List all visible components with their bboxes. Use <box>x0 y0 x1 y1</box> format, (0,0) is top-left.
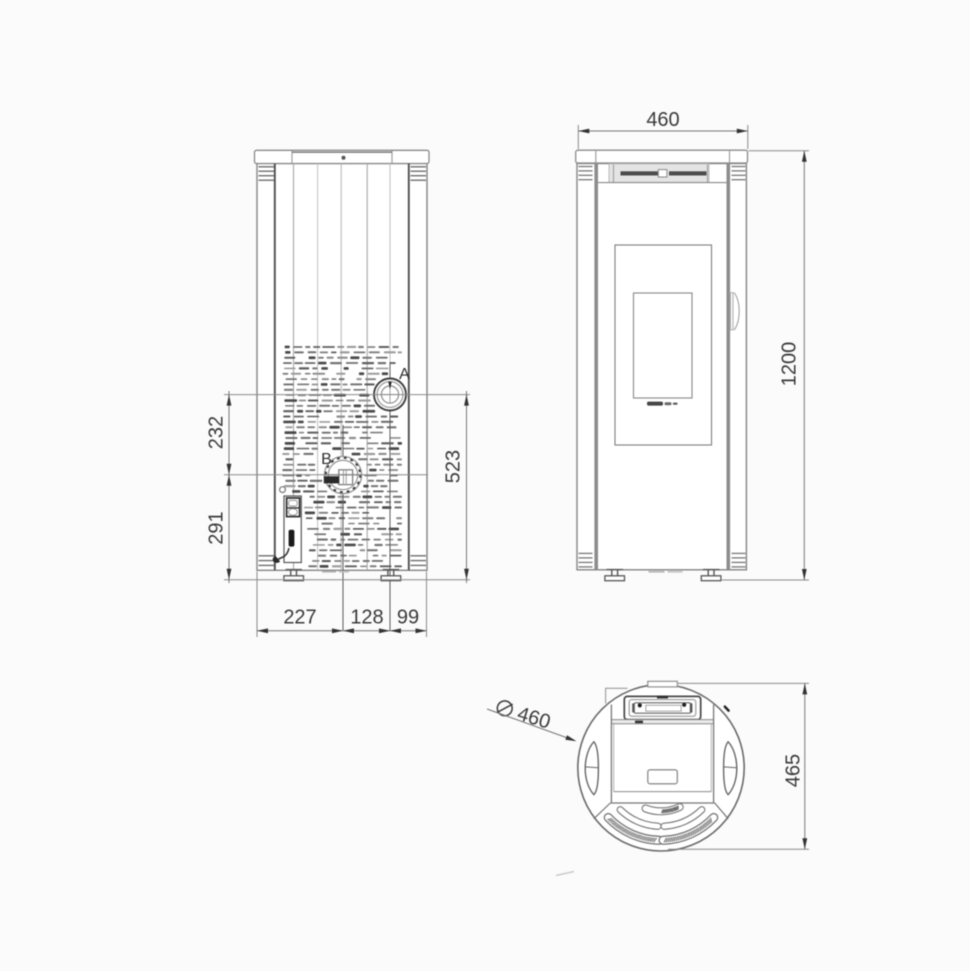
svg-text:99: 99 <box>397 607 419 629</box>
svg-text:128: 128 <box>350 607 383 629</box>
svg-text:465: 465 <box>783 754 805 787</box>
svg-text:1200: 1200 <box>779 342 801 387</box>
svg-text:227: 227 <box>283 607 316 629</box>
svg-text:232: 232 <box>206 416 228 449</box>
svg-text:A: A <box>399 366 410 383</box>
svg-text:460: 460 <box>646 109 679 131</box>
svg-text:523: 523 <box>443 450 465 483</box>
svg-text:B: B <box>321 451 332 468</box>
svg-text:291: 291 <box>206 511 228 544</box>
